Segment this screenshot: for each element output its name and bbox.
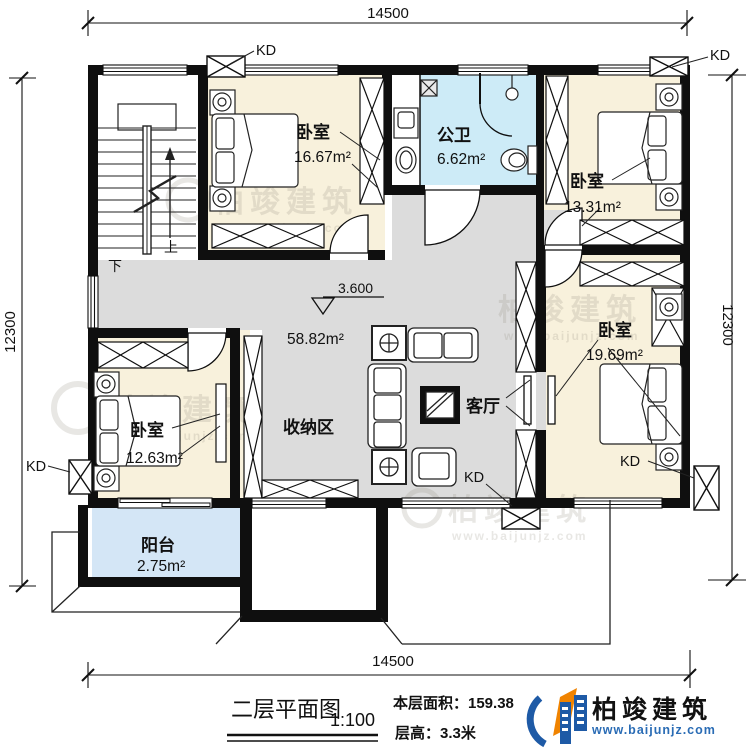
plan-scale: 1:100	[330, 710, 375, 730]
kd-label-west: KD	[26, 459, 46, 475]
wardrobe-bedroom-c-top	[580, 262, 684, 286]
window-bathroom	[458, 65, 528, 75]
window-west-hall	[88, 276, 98, 328]
stair-down-label: 下	[108, 258, 122, 274]
dim-bottom: 14500	[372, 653, 414, 670]
watermark-brand: 柏竣建筑	[214, 185, 358, 219]
storage-label: 收纳区	[283, 417, 334, 437]
kd-label-top-right: KD	[710, 48, 730, 64]
dim-left: 12300	[2, 311, 19, 353]
plan-title: 二层平面图	[231, 697, 341, 722]
bathroom-label: 公卫	[437, 126, 471, 145]
ac-unit-east	[694, 466, 719, 510]
balcony-label: 阳台	[141, 535, 175, 555]
bedroom-c-area: 19.69m²	[586, 347, 643, 364]
side-table-top	[372, 326, 406, 360]
closet-storage-west	[244, 336, 262, 498]
ac-unit-south	[502, 508, 540, 529]
ac-unit-top-right	[650, 57, 688, 76]
kd-label-top-left: KD	[256, 43, 276, 59]
floor-plan-page: 柏竣建筑 www.baijunjz.com 柏竣建筑 www.baijunjz.…	[0, 0, 750, 754]
brand-name: 柏竣建筑	[592, 695, 712, 724]
closet-bedroom-a-east	[360, 78, 384, 204]
bedroom-b-area: 13.31m²	[564, 199, 621, 216]
bathroom-area: 6.62m²	[437, 151, 485, 168]
hall-area: 58.82m²	[287, 331, 344, 348]
stair-up-label: 上	[164, 239, 178, 255]
balcony-sliding-door	[118, 498, 212, 508]
kd-label-east: KD	[620, 454, 640, 470]
tv-cabinet	[420, 386, 460, 424]
window-terrace-top	[252, 498, 326, 508]
balcony-area: 2.75m²	[137, 558, 185, 575]
armchair	[412, 448, 456, 486]
bedroom-a-label: 卧室	[296, 122, 330, 142]
sofa-two-seat	[408, 328, 478, 362]
wardrobe-bedroom-a	[212, 224, 324, 248]
title-block: 二层平面图 1:100 本层面积：159.38 层高：3.3米 柏竣建筑 www…	[227, 688, 716, 744]
kd-label-south: KD	[464, 470, 484, 486]
dim-right: 12300	[719, 304, 736, 346]
bedroom-d-area: 12.63m²	[126, 450, 183, 467]
bedroom-d-door-slab	[216, 384, 226, 462]
wardrobe-hall-bottom	[262, 480, 358, 498]
floor-plan-drawing: 柏竣建筑 www.baijunjz.com 柏竣建筑 www.baijunjz.…	[0, 0, 750, 754]
brand-url: www.baijunjz.com	[591, 723, 716, 737]
closet-living-east-lower	[516, 430, 536, 498]
floor-area-text: 本层面积：159.38	[393, 694, 514, 712]
watermark-url: www.baijunjz.com	[451, 529, 588, 543]
bedroom-b-label: 卧室	[570, 171, 604, 191]
level-value: 3.600	[338, 280, 373, 296]
wardrobe-bedroom-d	[98, 342, 188, 368]
sofa-three-seat	[368, 364, 406, 448]
side-table-bottom	[372, 450, 406, 484]
closet-bedroom-b-west	[546, 76, 568, 204]
closet-living-east-upper	[516, 262, 536, 372]
bedroom-a-area: 16.67m²	[294, 149, 351, 166]
dim-top: 14500	[367, 5, 409, 22]
brand-logo-icon	[530, 688, 587, 744]
wardrobe-bedroom-b	[580, 220, 684, 245]
ac-unit-west	[69, 460, 92, 494]
bedroom-d-label: 卧室	[130, 420, 164, 440]
shower-icon	[506, 88, 518, 100]
window-bedroom-c-south	[574, 498, 662, 508]
bedroom-c-label: 卧室	[598, 320, 632, 340]
living-label: 客厅	[465, 396, 500, 416]
floor-height-text: 层高：3.3米	[395, 724, 477, 742]
window-stairs	[103, 65, 187, 75]
window-living-south	[402, 498, 510, 508]
